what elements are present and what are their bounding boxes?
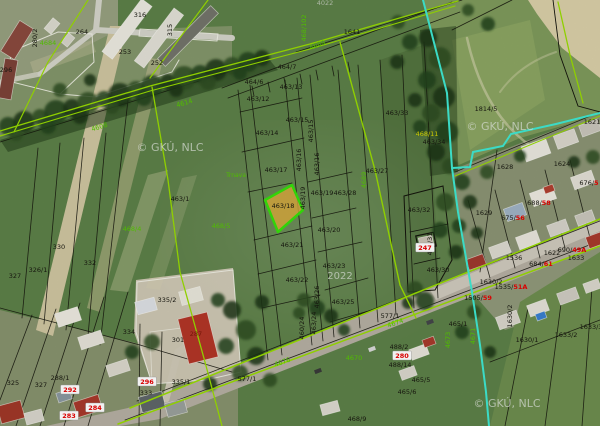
- cadastral-map[interactable]: 280/246842642963163152532524022468/10246…: [0, 0, 600, 426]
- photo-grain-overlay: [0, 0, 600, 426]
- cadastral-map-viewport[interactable]: 280/246842642963163152532524022468/10246…: [0, 0, 600, 426]
